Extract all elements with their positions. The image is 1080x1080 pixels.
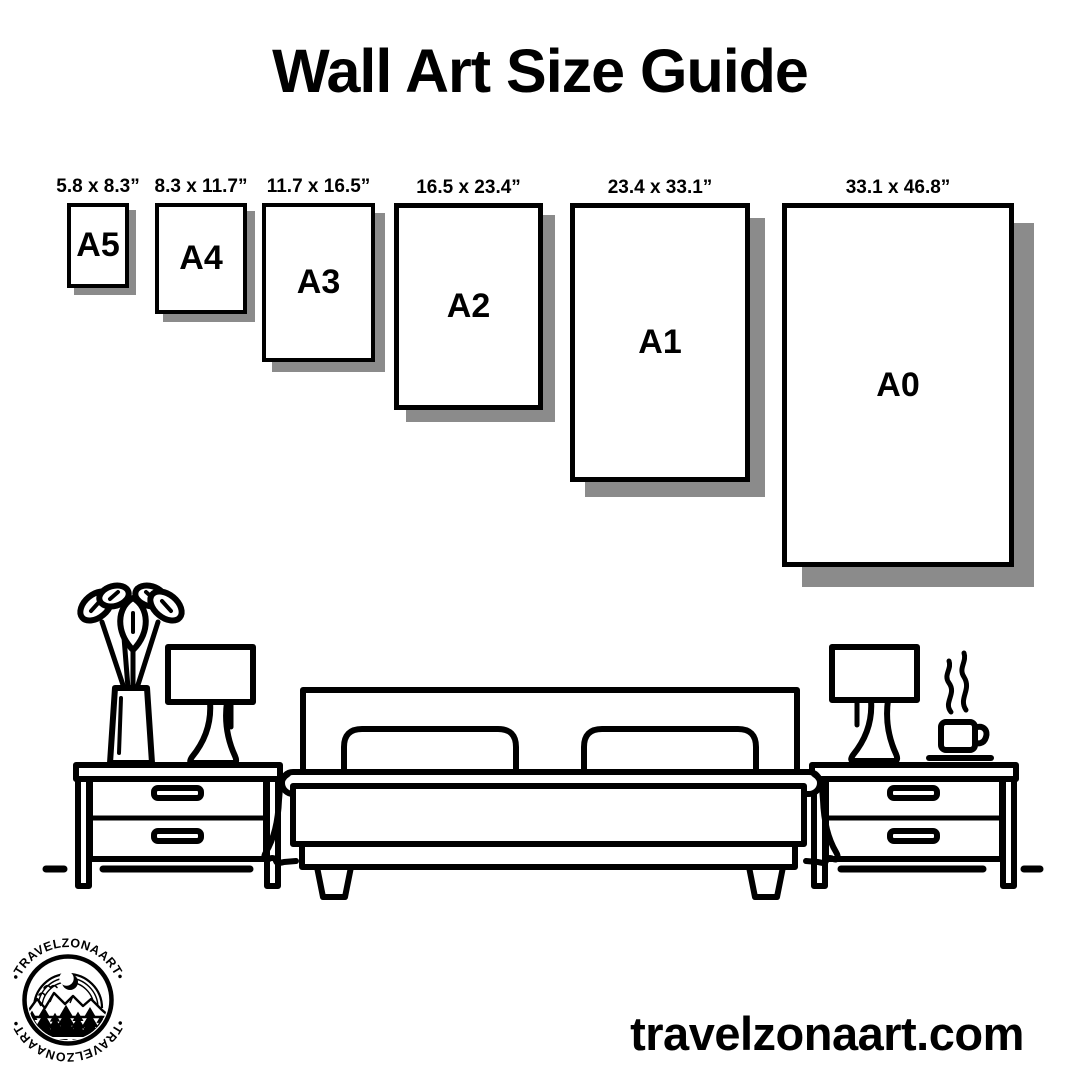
size-dimensions-label-a0: 33.1 x 46.8” <box>846 177 951 199</box>
page-title: Wall Art Size Guide <box>0 36 1080 112</box>
drawer-handle-icon <box>154 788 201 798</box>
table-lamp-right-icon <box>832 647 917 761</box>
vase-icon <box>110 688 152 763</box>
logo-badge: •TRAVELZONAART• •TRAVELZONAART• <box>6 938 130 1062</box>
size-frame-a2: 16.5 x 23.4” A2 <box>394 203 543 410</box>
size-frame-a1: 23.4 x 33.1” A1 <box>570 203 750 482</box>
bed-icon <box>264 690 837 897</box>
size-dimensions-label-a5: 5.8 x 8.3” <box>56 176 139 198</box>
drawer-handle-icon <box>890 788 937 798</box>
bed-leg-icon <box>317 867 351 897</box>
size-name-label-a2: A2 <box>447 287 490 326</box>
steam-icon <box>962 653 967 710</box>
size-dimensions-label-a2: 16.5 x 23.4” <box>416 177 521 199</box>
drawer-handle-icon <box>154 831 201 841</box>
coffee-cup-icon <box>929 653 991 758</box>
size-frame-a5: 5.8 x 8.3” A5 <box>67 203 129 288</box>
mattress-icon <box>293 786 804 844</box>
bedroom-scene <box>0 578 1080 918</box>
size-name-label-a1: A1 <box>638 323 681 362</box>
size-name-label-a5: A5 <box>76 226 119 265</box>
table-lamp-left-icon <box>168 647 253 763</box>
size-name-label-a3: A3 <box>297 263 340 302</box>
size-name-label-a0: A0 <box>876 366 919 405</box>
bed-leg-icon <box>749 867 783 897</box>
website-url: travelzonaart.com <box>560 1006 1080 1061</box>
size-dimensions-label-a4: 8.3 x 11.7” <box>155 176 248 198</box>
drawer-handle-icon <box>890 831 937 841</box>
size-frame-a0: 33.1 x 46.8” A0 <box>782 203 1014 567</box>
size-frame-a3: 11.7 x 16.5” A3 <box>262 203 375 362</box>
size-dimensions-label-a1: 23.4 x 33.1” <box>608 177 713 199</box>
size-name-label-a4: A4 <box>179 239 222 278</box>
steam-icon <box>947 661 952 712</box>
size-frame-a4: 8.3 x 11.7” A4 <box>155 203 247 314</box>
size-dimensions-label-a3: 11.7 x 16.5” <box>267 176 371 198</box>
